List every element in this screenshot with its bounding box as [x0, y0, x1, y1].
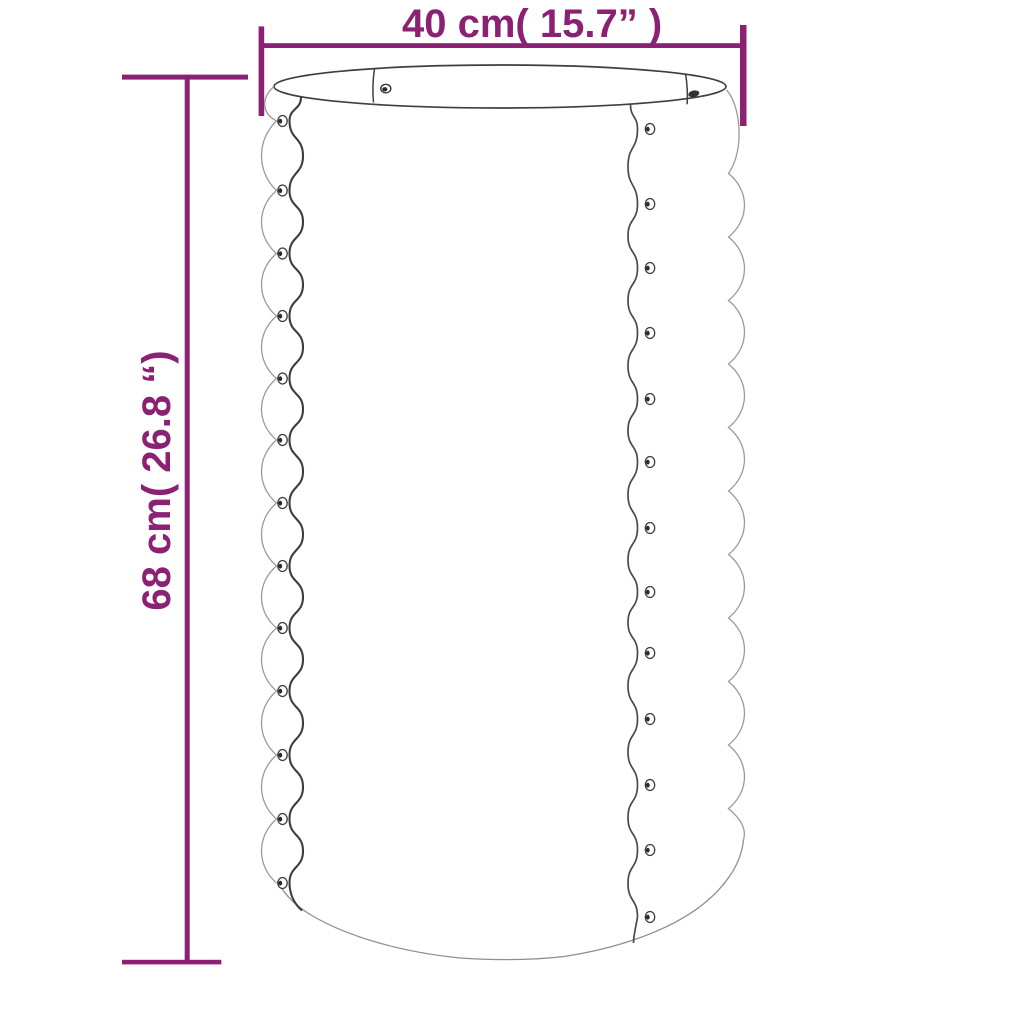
- svg-text:68 cm( 26.8 “): 68 cm( 26.8 “): [135, 350, 179, 610]
- svg-text:40 cm( 15.7” ): 40 cm( 15.7” ): [402, 2, 662, 46]
